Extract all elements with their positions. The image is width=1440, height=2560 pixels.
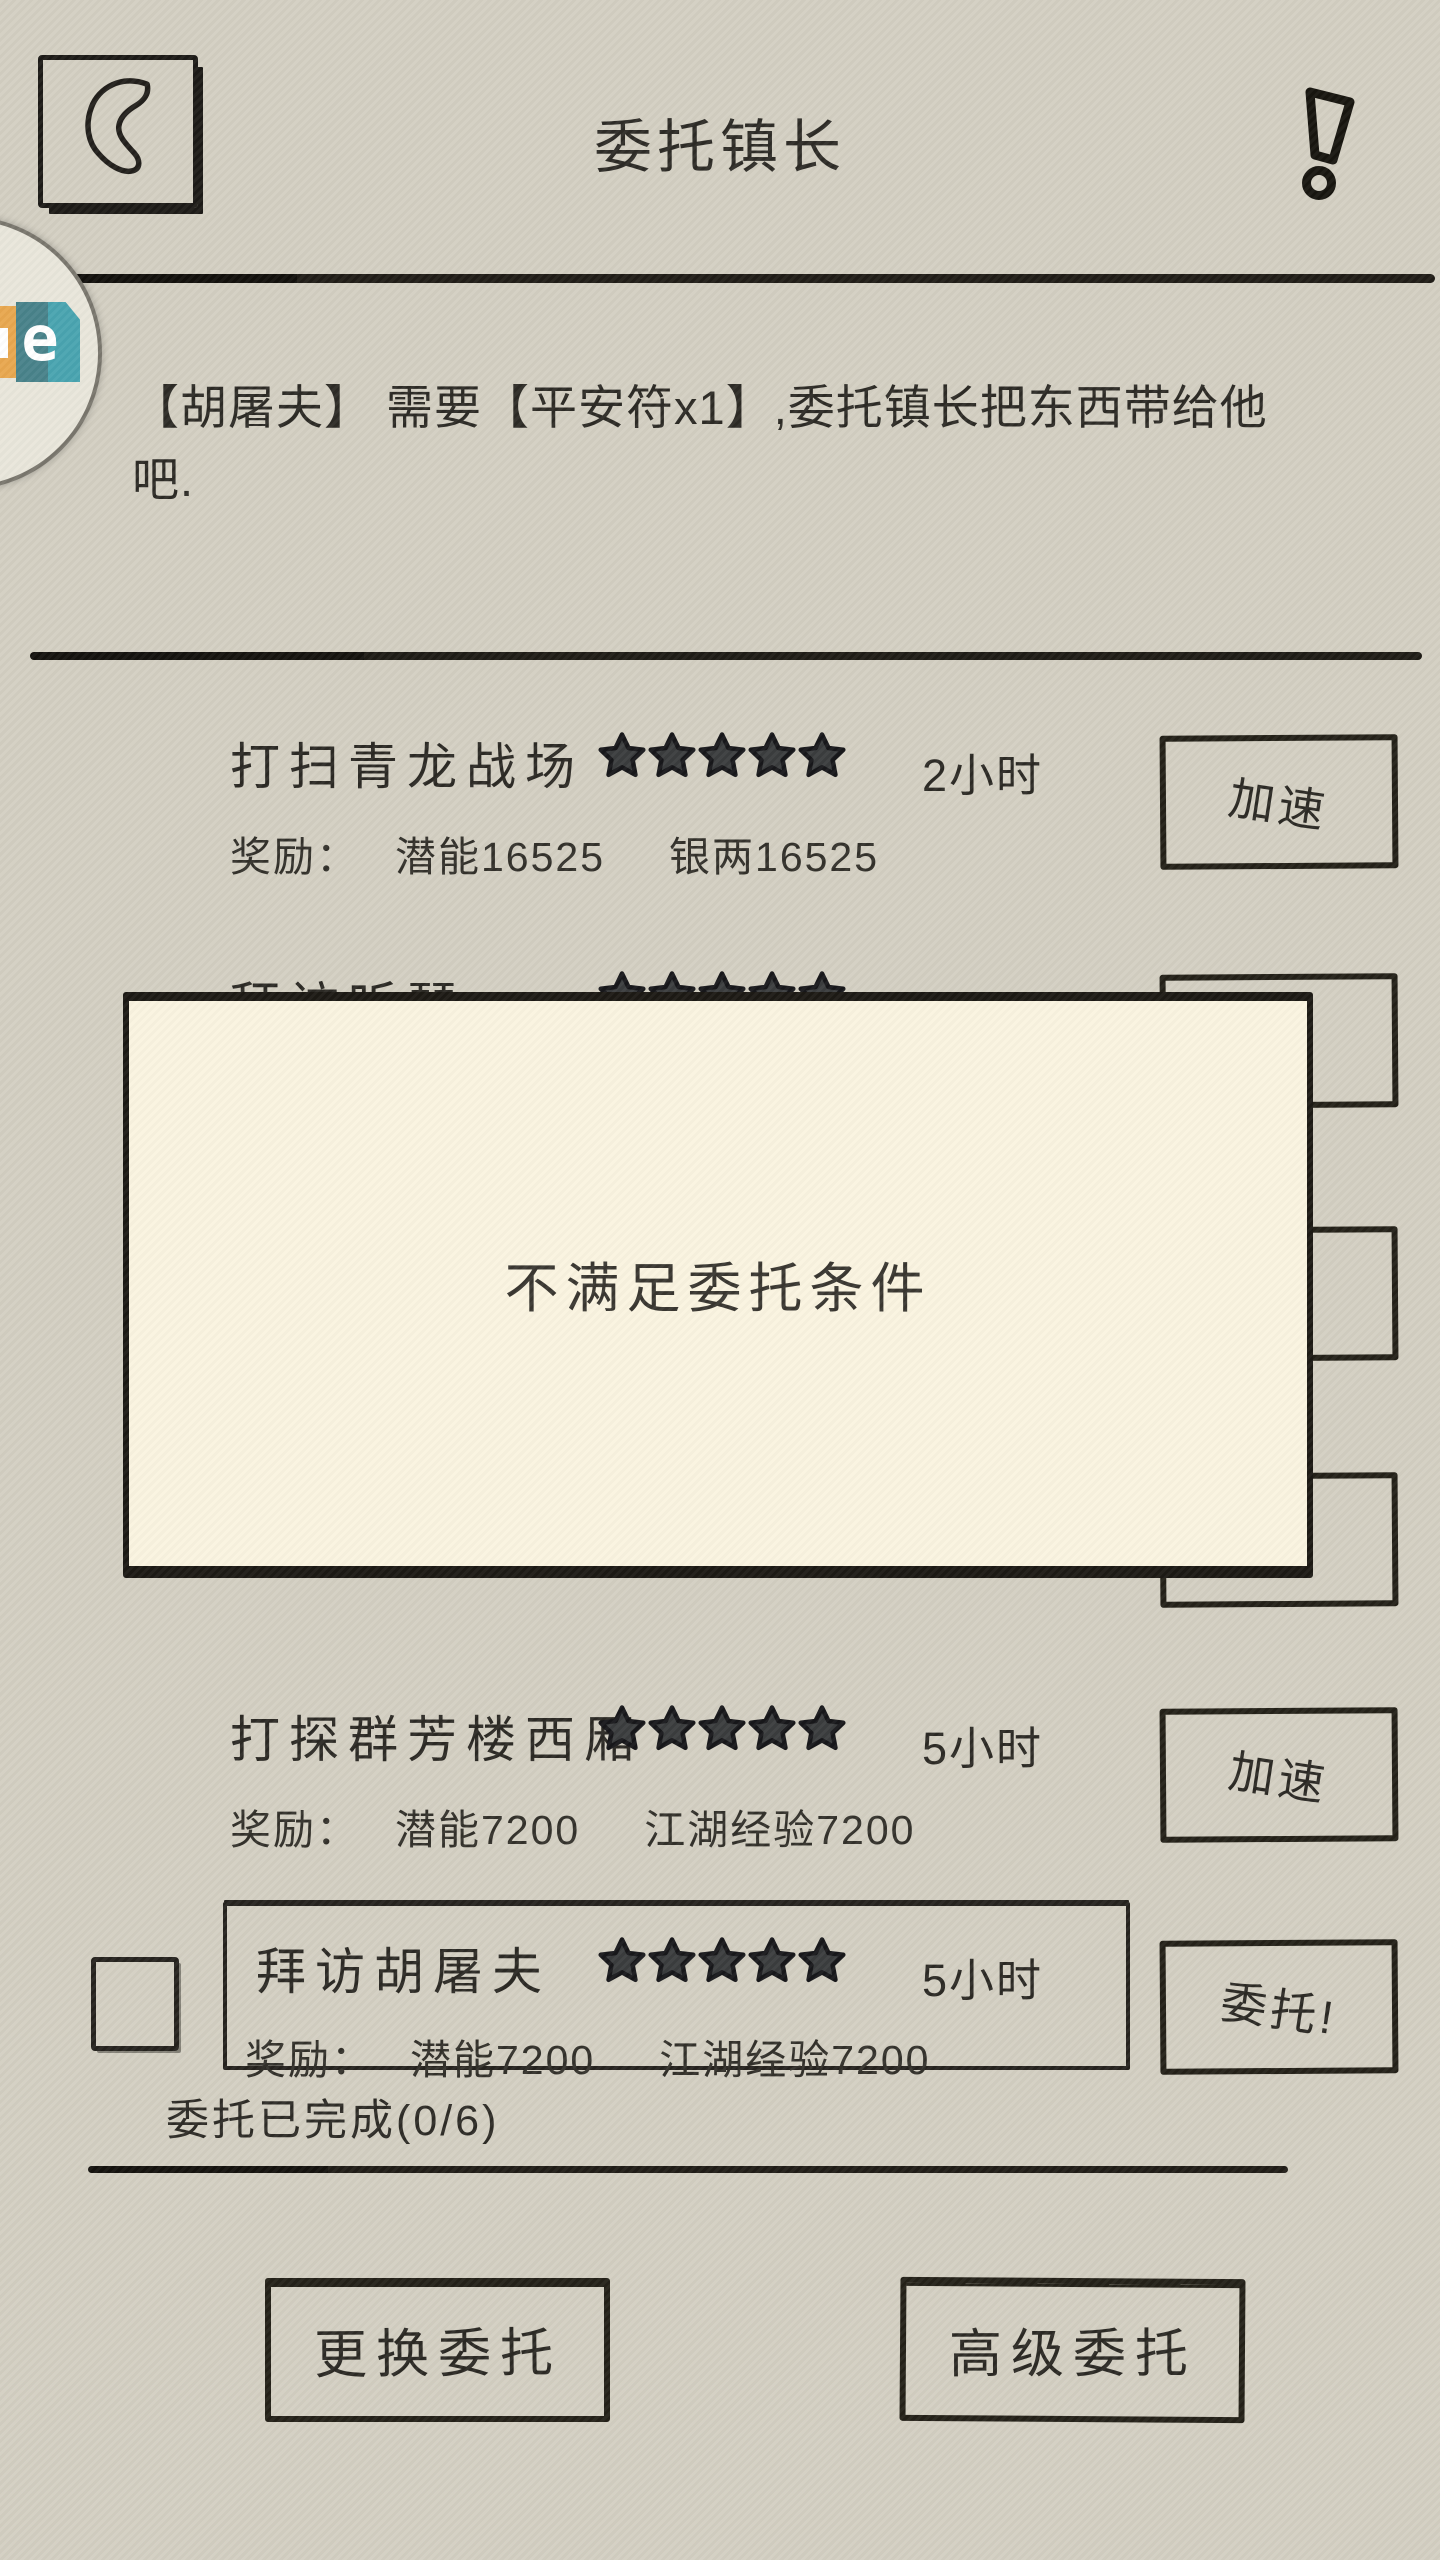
- star-icon: [648, 1934, 696, 1984]
- change-commission-button[interactable]: 更换委托: [265, 2278, 610, 2422]
- reward-label: 奖励：: [230, 823, 359, 883]
- task-title: 拜访胡屠夫: [256, 1932, 551, 2004]
- task-duration: 2小时: [922, 739, 1043, 804]
- commission-screen: 委托镇长 【胡屠夫】 需要【平安符x1】,委托镇长把东西带给他 吧. 打扫青龙战…: [0, 0, 1440, 2560]
- description-line: 吧.: [132, 444, 1372, 516]
- star-icon: [798, 1934, 846, 1984]
- star-icon: [698, 729, 746, 779]
- star-icon: [648, 729, 696, 779]
- star-icon: [748, 1702, 796, 1752]
- reward-item: 银两16525: [669, 823, 879, 883]
- star-icon: [598, 729, 646, 779]
- task-action-button[interactable]: 加速: [1160, 734, 1399, 870]
- reward-item: 潜能7200: [395, 1796, 580, 1856]
- task-action-label: 委托!: [1216, 1966, 1341, 2049]
- floating-widget-letter: e: [14, 308, 66, 370]
- modal-message: 不满足委托条件: [505, 1244, 932, 1323]
- topbar-divider: [30, 274, 1435, 283]
- commission-description: 【胡屠夫】 需要【平安符x1】,委托镇长把东西带给他 吧.: [132, 372, 1372, 516]
- reward-label: 奖励：: [230, 1796, 359, 1856]
- task-title: 打扫青龙战场: [230, 727, 584, 799]
- back-button[interactable]: [38, 55, 198, 208]
- task-action-label: 加速: [1225, 762, 1334, 842]
- reward-item: 江湖经验7200: [644, 1796, 915, 1856]
- star-icon: [748, 729, 796, 779]
- star-icon: [748, 1934, 796, 1984]
- modal-toast[interactable]: 不满足委托条件: [123, 992, 1313, 1578]
- star-icon: [698, 1702, 746, 1752]
- star-icon: [698, 1934, 746, 1984]
- task-action-button[interactable]: 加速: [1160, 1707, 1399, 1843]
- description-divider: [30, 652, 1422, 660]
- task-rewards: 奖励：潜能7200江湖经验7200: [230, 1796, 979, 1856]
- star-icon: [648, 1702, 696, 1752]
- star-icon: [598, 1702, 646, 1752]
- task-action-label: 加速: [1225, 1735, 1334, 1815]
- task-star-rating: [598, 729, 846, 779]
- change-commission-label: 更换委托: [313, 2311, 562, 2389]
- star-icon: [798, 729, 846, 779]
- task-rewards: 奖励：潜能16525银两16525: [230, 823, 943, 883]
- alert-button[interactable]: [1282, 78, 1374, 204]
- task-duration: 5小时: [922, 1944, 1043, 2009]
- advanced-commission-button[interactable]: 高级委托: [900, 2277, 1246, 2423]
- task-row: 打扫青龙战场2小时奖励：潜能16525银两16525加速: [0, 727, 1440, 973]
- task-action-button[interactable]: 委托!: [1160, 1939, 1399, 2075]
- reward-item: 潜能7200: [410, 2026, 595, 2086]
- description-line: 【胡屠夫】 需要【平安符x1】,委托镇长把东西带给他: [132, 372, 1372, 444]
- page-title: 委托镇长: [594, 100, 846, 184]
- reward-item: 潜能16525: [395, 823, 605, 883]
- task-star-rating: [598, 1934, 846, 1984]
- task-row: 拜访胡屠夫5小时奖励：潜能7200江湖经验7200委托!: [0, 1932, 1440, 2178]
- advanced-commission-label: 高级委托: [948, 2312, 1196, 2388]
- back-arrow-icon: [59, 70, 177, 193]
- task-rewards: 奖励：潜能7200江湖经验7200: [245, 2026, 994, 2086]
- task-checkbox[interactable]: [91, 1957, 179, 2051]
- task-star-rating: [598, 1702, 846, 1752]
- reward-item: 江湖经验7200: [659, 2026, 930, 2086]
- task-title: 打探群芳楼西厢: [230, 1700, 643, 1772]
- exclamation-icon: [1282, 191, 1374, 208]
- task-duration: 5小时: [922, 1712, 1043, 1777]
- reward-label: 奖励：: [245, 2026, 374, 2086]
- star-icon: [598, 1934, 646, 1984]
- star-icon: [798, 1702, 846, 1752]
